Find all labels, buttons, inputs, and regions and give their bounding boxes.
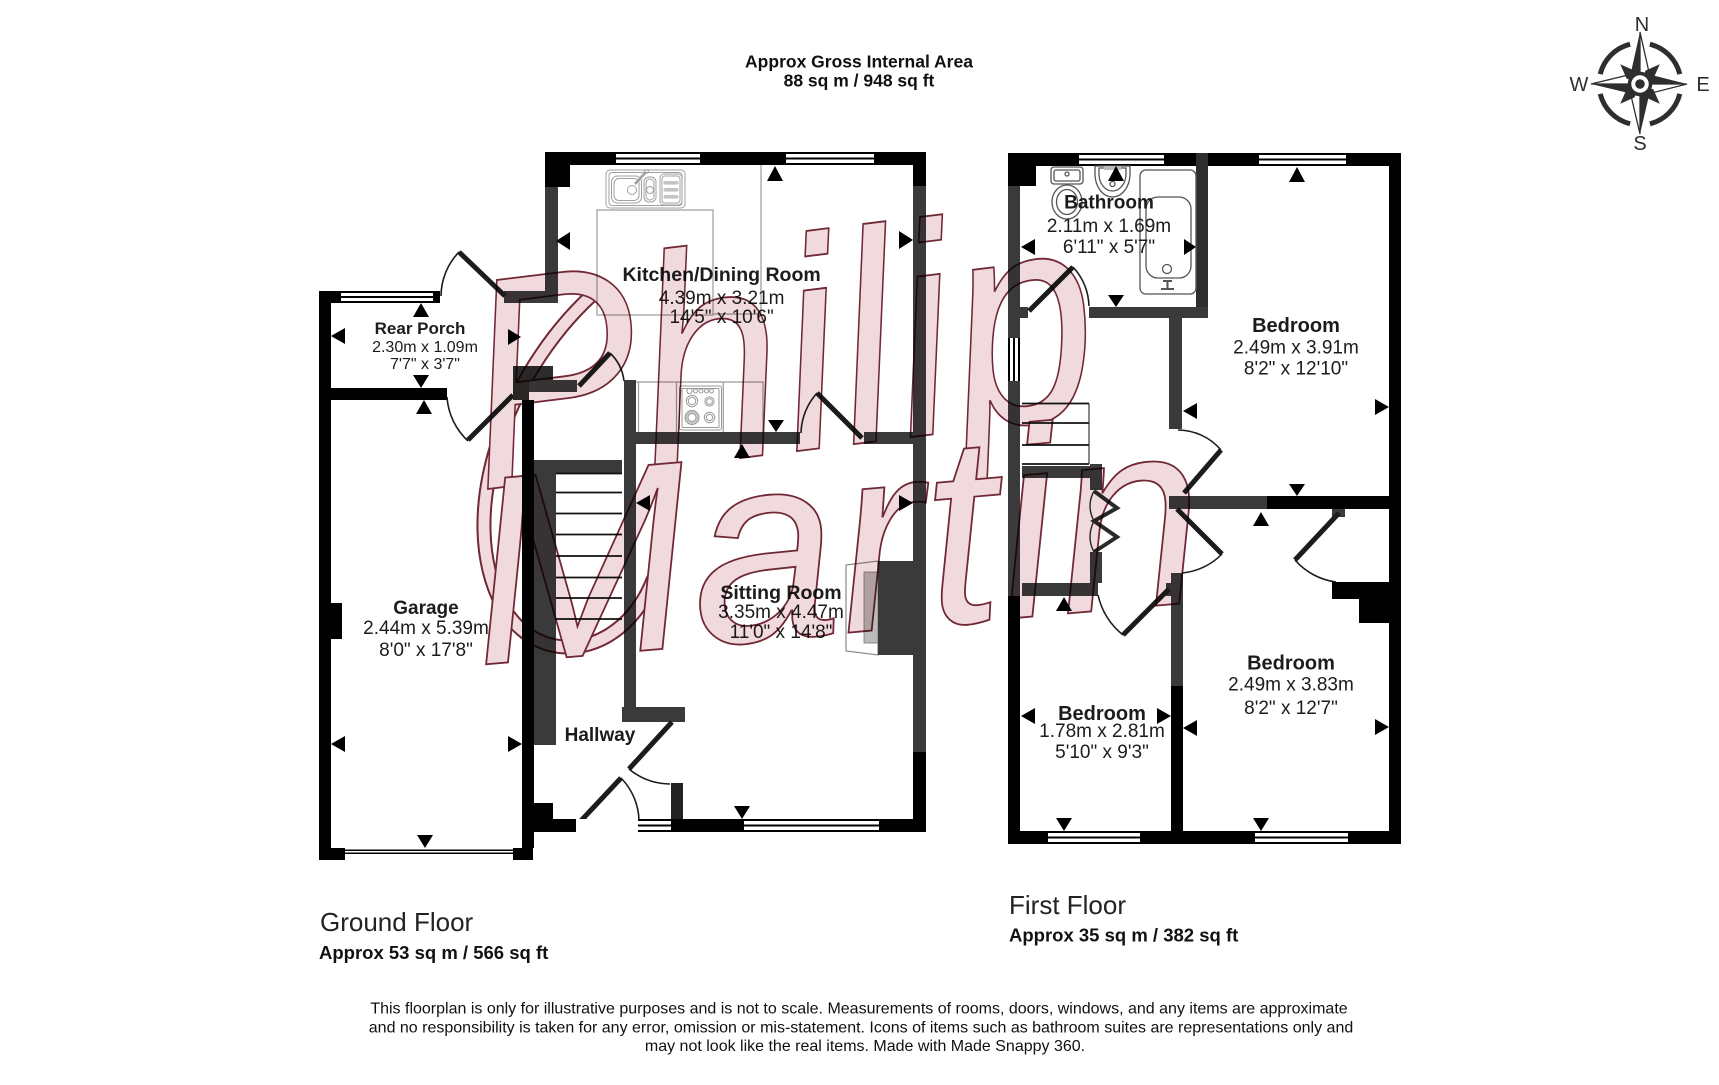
svg-text:Bedroom: Bedroom <box>1247 653 1335 675</box>
svg-text:8'2" x 12'7": 8'2" x 12'7" <box>1244 698 1338 719</box>
svg-text:E: E <box>1696 74 1709 96</box>
svg-text:2.44m x 5.39m: 2.44m x 5.39m <box>363 618 489 639</box>
svg-text:Garage: Garage <box>393 598 458 619</box>
svg-text:2.49m x 3.83m: 2.49m x 3.83m <box>1228 675 1354 696</box>
svg-text:Hallway: Hallway <box>565 725 636 746</box>
svg-text:N: N <box>1635 14 1649 36</box>
svg-text:7'7" x 3'7": 7'7" x 3'7" <box>390 356 460 373</box>
svg-text:88 sq m / 948 sq ft: 88 sq m / 948 sq ft <box>784 71 935 91</box>
svg-text:Ground Floor: Ground Floor <box>320 907 474 937</box>
svg-text:Approx 53 sq m / 566 sq ft: Approx 53 sq m / 566 sq ft <box>319 942 548 963</box>
svg-text:8'0" x 17'8": 8'0" x 17'8" <box>379 640 473 661</box>
svg-text:W: W <box>1570 74 1589 96</box>
svg-text:5'10" x 9'3": 5'10" x 9'3" <box>1055 742 1149 763</box>
svg-text:Approx Gross Internal Area: Approx Gross Internal Area <box>745 52 973 72</box>
svg-text:Martin: Martin <box>457 359 1215 722</box>
svg-text:This floorplan is only for ill: This floorplan is only for illustrative … <box>370 1001 1347 1018</box>
svg-text:and no responsibility is taken: and no responsibility is taken for any e… <box>369 1020 1353 1037</box>
svg-text:Bedroom: Bedroom <box>1252 315 1340 337</box>
svg-text:1.78m x 2.81m: 1.78m x 2.81m <box>1039 721 1165 742</box>
svg-text:Rear Porch: Rear Porch <box>375 319 466 338</box>
svg-text:First Floor: First Floor <box>1009 890 1126 920</box>
svg-text:8'2" x 12'10": 8'2" x 12'10" <box>1244 359 1348 380</box>
svg-text:Approx 35 sq m / 382 sq ft: Approx 35 sq m / 382 sq ft <box>1009 925 1238 946</box>
svg-text:S: S <box>1633 133 1646 155</box>
svg-text:may not look like the real ite: may not look like the real items. Made w… <box>645 1038 1085 1055</box>
svg-text:2.49m x 3.91m: 2.49m x 3.91m <box>1233 338 1359 359</box>
